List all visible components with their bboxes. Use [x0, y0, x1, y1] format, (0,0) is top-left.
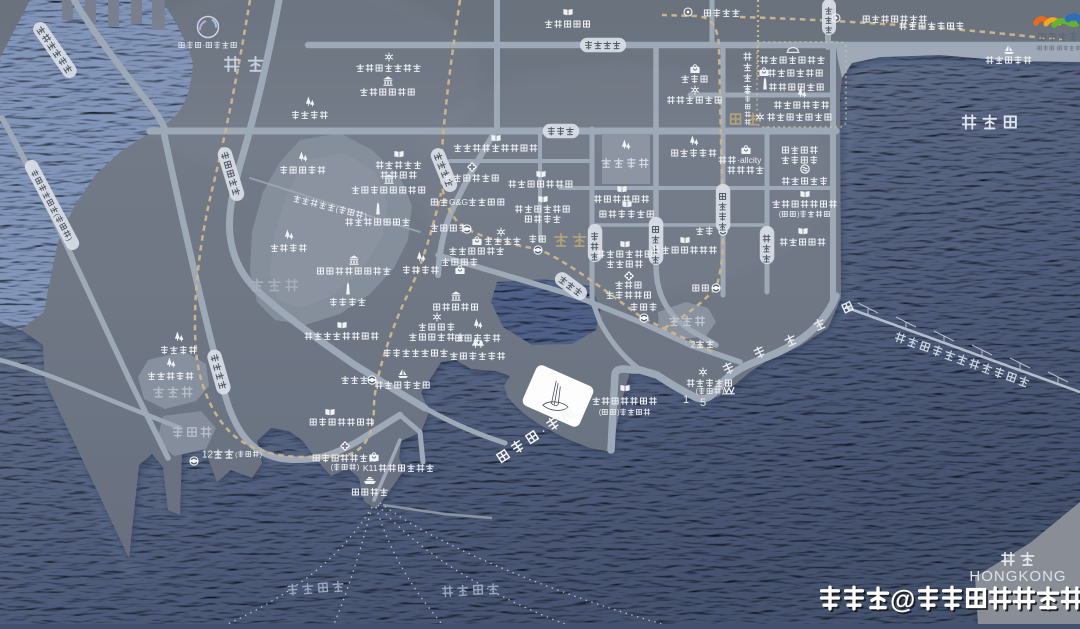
svg-text:): ): [797, 210, 799, 219]
svg-text:1: 1: [683, 394, 689, 406]
svg-text:2: 2: [691, 339, 696, 349]
svg-text:): ): [260, 451, 262, 458]
svg-text:K11: K11: [363, 463, 378, 473]
svg-text:·: ·: [203, 41, 206, 50]
svg-text:·: ·: [1055, 46, 1057, 52]
svg-text:5: 5: [700, 397, 706, 409]
svg-text:): ): [357, 463, 359, 472]
svg-text:): ): [722, 387, 724, 396]
svg-text:HONGKONG: HONGKONG: [969, 568, 1066, 585]
svg-text:12: 12: [202, 450, 214, 461]
svg-text:·allcity: ·allcity: [737, 155, 762, 165]
svg-text:): ): [617, 408, 619, 417]
svg-text:@: @: [890, 584, 915, 614]
svg-text:G&G: G&G: [449, 197, 468, 207]
